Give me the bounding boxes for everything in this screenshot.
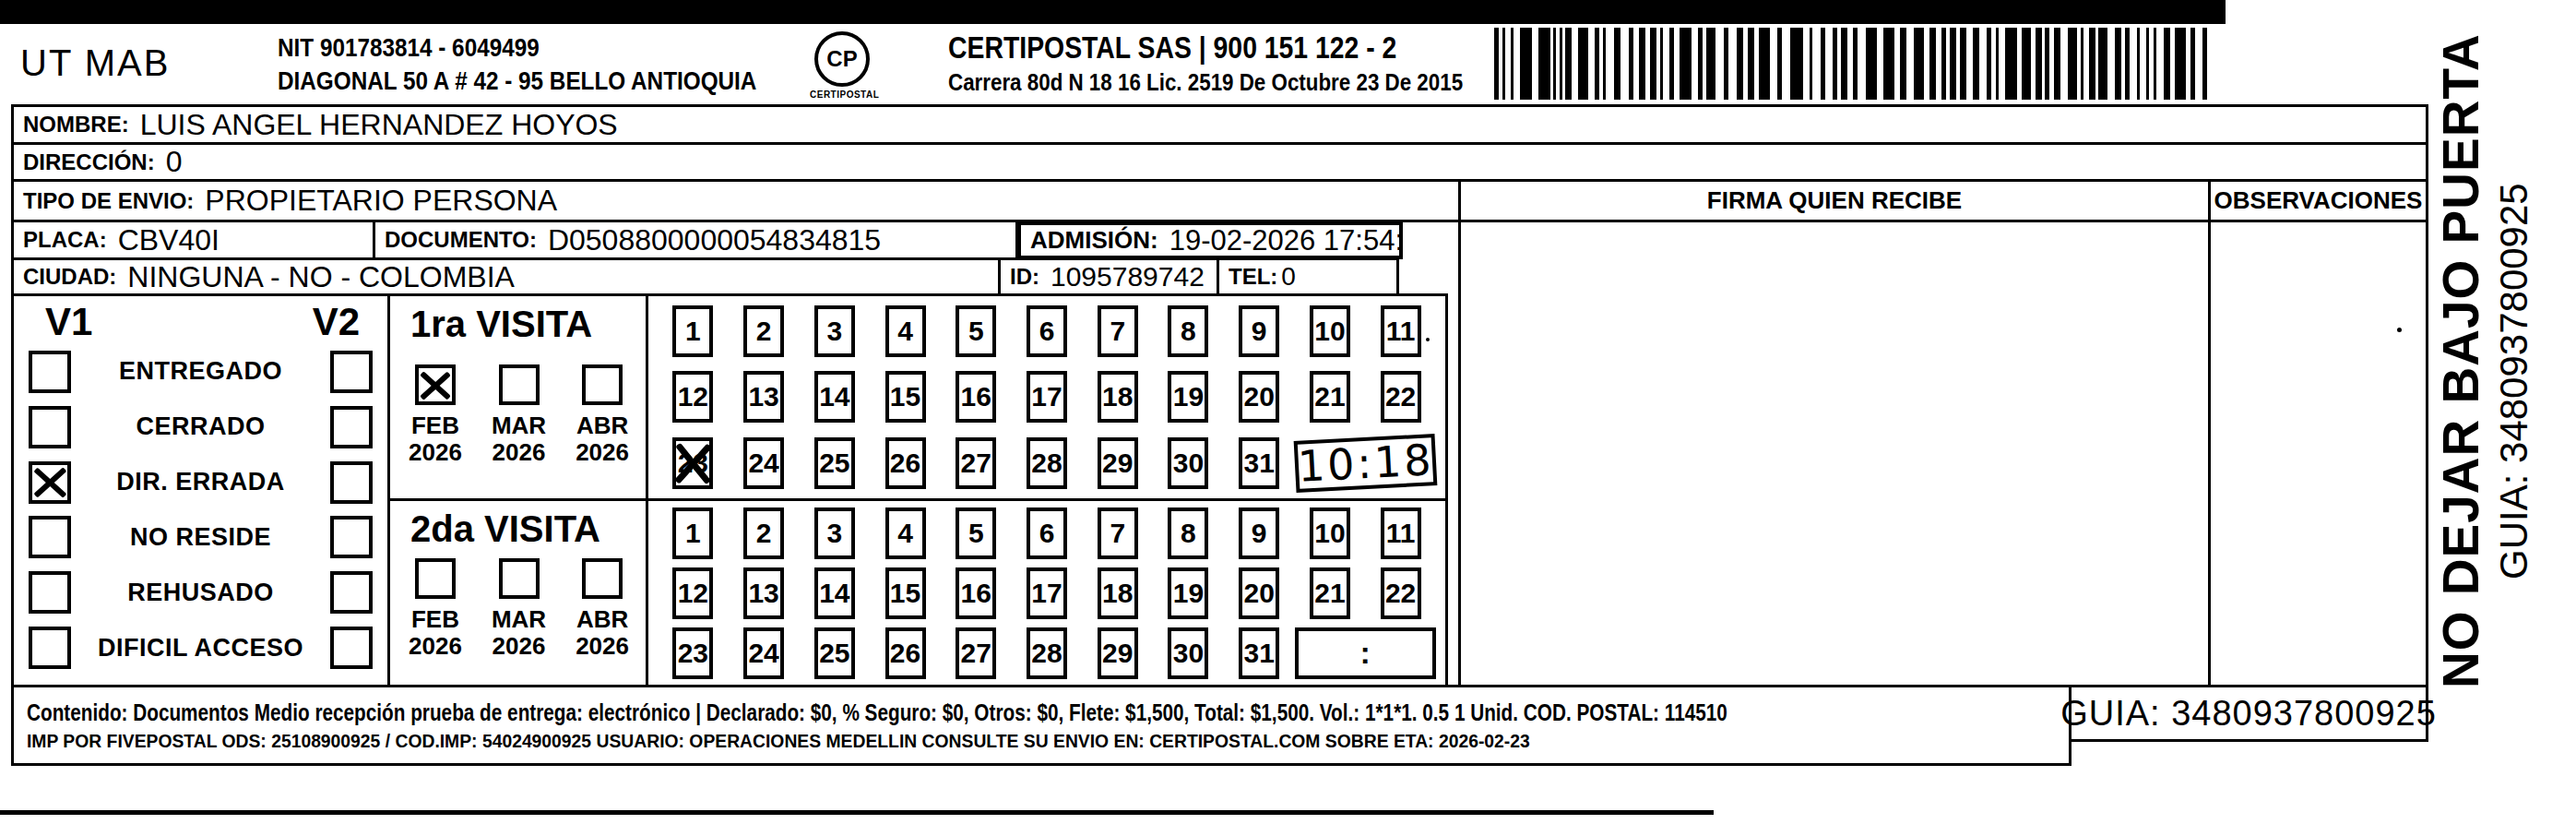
day-number: 6 [1039, 316, 1055, 347]
barcode-bar [1650, 28, 1656, 100]
day-number: 13 [748, 578, 778, 609]
shipment-details-box: Contenido: Documentos Medio recepción pr… [11, 685, 2071, 766]
day-number: 31 [1243, 448, 1274, 479]
day-number: 16 [961, 578, 991, 609]
day-number: 18 [1102, 578, 1133, 609]
status-label: DIR. ERRADA [71, 468, 330, 496]
day-row: 1213141516171819202122 [658, 371, 1436, 423]
placa-cell: PLACA: CBV40I [11, 220, 375, 260]
checkbox-v2-entregado [330, 351, 373, 393]
ciudad-value: NINGUNA - NO - COLOMBIA [127, 260, 515, 294]
day-box-9-visit2: 9 [1239, 508, 1279, 559]
day-number: 3 [826, 316, 842, 347]
day-box-7-visit1: 7 [1098, 305, 1138, 357]
day-number: 20 [1243, 578, 1274, 609]
day-number: 22 [1385, 578, 1416, 609]
barcode-bar [2022, 28, 2031, 100]
checkbox-month-mar-visit1 [499, 364, 540, 405]
barcode-bar [2068, 28, 2077, 100]
day-box-23-visit1: 23 [672, 437, 713, 489]
day-number: 17 [1031, 578, 1062, 609]
barcode-bar [2036, 28, 2042, 100]
day-number: 8 [1181, 316, 1196, 347]
barcode-bar [2202, 28, 2207, 100]
tel-cell: TEL: 0 [1217, 257, 1399, 296]
visit2-days: 1234567891011121314151617181920212223242… [658, 503, 1436, 683]
day-number: 11 [1386, 518, 1416, 549]
day-number: 9 [1252, 316, 1267, 347]
checkbox-v1-cerrado [29, 406, 71, 448]
visit1-months: FEB2026MAR2026ABR2026 [409, 364, 629, 466]
day-box-6-visit2: 6 [1027, 508, 1067, 559]
day-number: 14 [819, 381, 849, 412]
barcode-bar [1706, 28, 1715, 100]
day-number: 11 [1386, 316, 1416, 347]
day-box-26-visit2: 26 [885, 627, 926, 679]
day-number: 3 [826, 518, 842, 549]
barcode-bar [1996, 28, 1999, 100]
barcode-bar [1737, 28, 1743, 100]
visit2-months: FEB2026MAR2026ABR2026 [409, 558, 629, 660]
day-number: 26 [890, 448, 920, 479]
scan-artifact-dot [2397, 328, 2402, 332]
checkbox-v2-no-reside [330, 516, 373, 558]
barcode-bar [1578, 28, 1588, 100]
day-number: 24 [748, 638, 778, 669]
day-number: 2 [756, 518, 772, 549]
day-number: 4 [897, 518, 913, 549]
day-number: 12 [678, 381, 708, 412]
barcode-bar [1810, 28, 1812, 100]
tipo-envio-value: PROPIETARIO PERSONA [205, 184, 557, 218]
visit1-title: 1ra VISITA [410, 304, 592, 345]
day-box-10-visit1: 10 [1310, 305, 1350, 357]
checkbox-v1-dir-errada [29, 461, 71, 504]
barcode-bar [2115, 28, 2121, 100]
day-box-5-visit2: 5 [956, 508, 996, 559]
day-number: 26 [890, 638, 920, 669]
day-number: 29 [1102, 448, 1133, 479]
month-abr-visit2: ABR2026 [576, 558, 629, 660]
day-number: 24 [748, 448, 778, 479]
day-box-2-visit2: 2 [743, 508, 784, 559]
barcode-bar [1950, 28, 1956, 100]
barcode-bar [1866, 28, 1877, 100]
day-box-31-visit1: 31 [1239, 437, 1279, 489]
month-year: 2026 [576, 633, 629, 660]
sender-address-block: NIT 901783814 - 6049499 DIAGONAL 50 A # … [278, 31, 756, 98]
day-number: 22 [1385, 381, 1416, 412]
barcode-bar [1603, 28, 1606, 100]
status-label: REHUSADO [71, 579, 330, 607]
day-number: 25 [819, 638, 849, 669]
day-box-30-visit2: 30 [1168, 627, 1208, 679]
documento-cell: DOCUMENTO: D0508800000054834815 [373, 220, 1018, 260]
nombre-value: LUIS ANGEL HERNANDEZ HOYOS [140, 108, 618, 142]
day-number: 13 [748, 381, 778, 412]
day-box-19-visit2: 19 [1168, 567, 1208, 619]
side-strip: NO DEJAR BAJO PUERTA GUIA: 3480937800925 [2431, 89, 2576, 688]
day-number: 19 [1173, 578, 1204, 609]
nombre-row: NOMBRE: LUIS ANGEL HERNANDEZ HOYOS [11, 104, 2428, 145]
month-feb-visit1: FEB2026 [409, 364, 462, 466]
barcode-bar [1494, 28, 1499, 100]
barcode-bar [1853, 28, 1858, 100]
sender-nit: NIT 901783814 - 6049499 [278, 31, 756, 65]
admision-label: ADMISIÓN: [1030, 226, 1158, 255]
barcode-bar [1669, 28, 1674, 100]
day-box-15-visit1: 15 [885, 371, 926, 423]
barcode-bar [1553, 28, 1556, 100]
checkbox-v1-rehusado [29, 571, 71, 614]
day-box-12-visit2: 12 [672, 567, 713, 619]
month-name: MAR [492, 606, 546, 633]
id-value: 1095789742 [1051, 261, 1205, 293]
day-box-22-visit2: 22 [1381, 567, 1421, 619]
tel-label: TEL: [1229, 264, 1277, 290]
status-row-dir-errada: DIR. ERRADA [29, 461, 373, 504]
no-dejar-bajo-puerta-warning: NO DEJAR BAJO PUERTA [2431, 89, 2490, 688]
day-number: 10 [1314, 316, 1345, 347]
barcode-bar [2054, 28, 2060, 100]
day-box-13-visit2: 13 [743, 567, 784, 619]
barcode-bar [1883, 28, 1894, 100]
month-abr-visit1: ABR2026 [576, 364, 629, 466]
sender-street: DIAGONAL 50 A # 42 - 95 BELLO ANTIOQUIA [278, 65, 756, 98]
id-cell: ID: 1095789742 [998, 257, 1219, 296]
month-mar-visit2: MAR2026 [492, 558, 546, 660]
day-box-13-visit1: 13 [743, 371, 784, 423]
barcode-bar [1511, 28, 1514, 100]
day-box-8-visit1: 8 [1168, 305, 1208, 357]
barcode-bar [1929, 28, 1936, 100]
documento-value: D0508800000054834815 [548, 223, 881, 257]
month-name: FEB [411, 412, 459, 439]
company-block: CERTIPOSTAL SAS | 900 151 122 - 2 Carrer… [948, 30, 1463, 98]
month-year: 2026 [493, 633, 546, 660]
barcode-bar [1538, 28, 1550, 100]
month-year: 2026 [409, 633, 462, 660]
day-box-15-visit2: 15 [885, 567, 926, 619]
ciudad-cell: CIUDAD: NINGUNA - NO - COLOMBIA [11, 257, 1001, 296]
month-feb-visit2: FEB2026 [409, 558, 462, 660]
scan-artifact-dot [1426, 338, 1430, 341]
barcode-bar [1502, 28, 1505, 100]
documento-label: DOCUMENTO: [385, 227, 537, 253]
day-box-18-visit2: 18 [1098, 567, 1138, 619]
day-box-26-visit1: 26 [885, 437, 926, 489]
barcode-bar [2146, 28, 2149, 100]
month-name: FEB [411, 606, 459, 633]
checkbox-v2-cerrado [330, 406, 373, 448]
firma-header: FIRMA QUIEN RECIBE [1458, 179, 2211, 222]
day-box-24-visit1: 24 [743, 437, 784, 489]
barcode-bar [1900, 28, 1906, 100]
status-label: NO RESIDE [71, 523, 330, 552]
day-number: 5 [968, 316, 984, 347]
observaciones-area [2208, 220, 2428, 687]
day-box-21-visit1: 21 [1310, 371, 1350, 423]
day-box-29-visit2: 29 [1098, 627, 1138, 679]
day-box-2-visit1: 2 [743, 305, 784, 357]
day-box-4-visit2: 4 [885, 508, 926, 559]
checkbox-v2-dir-errada [330, 461, 373, 504]
time-box-visit1: 10:18 [1293, 434, 1437, 493]
status-row-dificil-acceso: DIFICIL ACCESO [29, 627, 373, 669]
month-name: ABR [576, 412, 628, 439]
checkbox-v1-entregado [29, 351, 71, 393]
barcode-bar [1841, 28, 1847, 100]
day-box-16-visit1: 16 [956, 371, 996, 423]
barcode-bar [1698, 28, 1703, 100]
visit1-column-header: V1 [45, 300, 92, 344]
barcode-bar [1680, 28, 1692, 100]
checkbox-month-feb-visit2 [415, 558, 456, 599]
barcode-bar [1759, 28, 1770, 100]
barcode-bar [2164, 28, 2170, 100]
placa-value: CBV40I [118, 223, 220, 257]
day-number: 7 [1110, 518, 1125, 549]
barcode-bar [1639, 28, 1645, 100]
month-year: 2026 [409, 439, 462, 466]
day-box-9-visit1: 9 [1239, 305, 1279, 357]
status-panel: V1 V2 ENTREGADOCERRADODIR. ERRADANO RESI… [11, 293, 390, 687]
visit2-title: 2da VISITA [410, 508, 600, 550]
barcode-bar [1614, 28, 1620, 100]
barcode-bar [1660, 28, 1663, 100]
day-number: 4 [897, 316, 913, 347]
day-box-6-visit1: 6 [1027, 305, 1067, 357]
day-box-11-visit1: 11 [1381, 305, 1421, 357]
day-number: 31 [1243, 638, 1274, 669]
sender-code: UT MAB [20, 42, 170, 84]
day-number: 2 [756, 316, 772, 347]
day-number: 12 [678, 578, 708, 609]
month-mar-visit1: MAR2026 [492, 364, 546, 466]
day-number: 8 [1181, 518, 1196, 549]
day-row: 23242526272829303110:18 [658, 437, 1436, 489]
direccion-label: DIRECCIÓN: [23, 149, 155, 175]
checkbox-month-mar-visit2 [499, 558, 540, 599]
day-number: 9 [1252, 518, 1267, 549]
status-label: DIFICIL ACCESO [71, 634, 330, 663]
day-box-21-visit2: 21 [1310, 567, 1350, 619]
day-box-27-visit2: 27 [956, 627, 996, 679]
company-license: Carrera 80d N 18 16 Lic. 2519 De Octubre… [948, 66, 1463, 98]
month-year: 2026 [493, 439, 546, 466]
day-number: 20 [1243, 381, 1274, 412]
barcode-bar [1724, 28, 1728, 100]
day-box-30-visit1: 30 [1168, 437, 1208, 489]
barcode-bar [1833, 28, 1837, 100]
checkbox-v1-no-reside [29, 516, 71, 558]
status-label: CERRADO [71, 412, 330, 441]
barcode [1494, 28, 2221, 100]
visit1-day-grid: 1234567891011121314151617181920212223242… [646, 293, 1448, 501]
signature-area [1458, 220, 2211, 687]
day-box-3-visit1: 3 [814, 305, 855, 357]
barcode-bar [1790, 28, 1803, 100]
day-box-3-visit2: 3 [814, 508, 855, 559]
checkbox-v1-dificil-acceso [29, 627, 71, 669]
day-box-25-visit2: 25 [814, 627, 855, 679]
barcode-bar [1987, 28, 1991, 100]
admision-value: 19-02-2026 17:54:45 [1169, 224, 1403, 257]
day-box-5-visit1: 5 [956, 305, 996, 357]
day-number: 21 [1314, 381, 1345, 412]
day-number: 6 [1039, 518, 1055, 549]
barcode-bar [1973, 28, 1979, 100]
certipostal-logo: CP CERTIPOSTAL [810, 31, 874, 100]
day-box-27-visit1: 27 [956, 437, 996, 489]
day-box-20-visit2: 20 [1239, 567, 1279, 619]
day-number: 18 [1102, 381, 1133, 412]
day-box-10-visit2: 10 [1310, 508, 1350, 559]
day-box-14-visit1: 14 [814, 371, 855, 423]
barcode-bar [1560, 28, 1562, 100]
barcode-bar [1520, 28, 1532, 100]
day-box-16-visit2: 16 [956, 567, 996, 619]
company-name: CERTIPOSTAL SAS | 900 151 122 - 2 [948, 30, 1463, 66]
barcode-bar [1748, 28, 1754, 100]
checkbox-month-abr-visit2 [582, 558, 623, 599]
side-strip-rotated: NO DEJAR BAJO PUERTA GUIA: 3480937800925 [2431, 89, 2576, 688]
barcode-bar [2125, 28, 2130, 100]
barcode-bar [1941, 28, 1946, 100]
day-number: 1 [685, 518, 701, 549]
visit1-days: 1234567891011121314151617181920212223242… [658, 298, 1436, 496]
day-number: 15 [890, 578, 920, 609]
day-box-17-visit2: 17 [1027, 567, 1067, 619]
ciudad-label: CIUDAD: [23, 264, 116, 290]
day-box-25-visit1: 25 [814, 437, 855, 489]
month-name: MAR [492, 412, 546, 439]
barcode-bar [2081, 28, 2083, 100]
day-number: 29 [1102, 638, 1133, 669]
day-number: 25 [819, 448, 849, 479]
day-box-23-visit2: 23 [672, 627, 713, 679]
barcode-bar [2045, 28, 2049, 100]
shipping-label-scan: UT MAB NIT 901783814 - 6049499 DIAGONAL … [0, 0, 2576, 836]
day-box-11-visit2: 11 [1381, 508, 1421, 559]
day-number: 1 [685, 316, 701, 347]
visit2-panel: 2da VISITA FEB2026MAR2026ABR2026 [387, 498, 648, 687]
barcode-bar [1821, 28, 1825, 100]
day-box-19-visit1: 19 [1168, 371, 1208, 423]
guia-number-box: GUIA: 3480937800925 [2069, 685, 2428, 742]
month-name: ABR [576, 606, 628, 633]
bottom-rule [0, 810, 1714, 815]
certipostal-logo-text: CERTIPOSTAL [810, 90, 874, 100]
day-box-31-visit2: 31 [1239, 627, 1279, 679]
day-number: 21 [1314, 578, 1345, 609]
visit2-day-grid: 1234567891011121314151617181920212223242… [646, 498, 1448, 687]
status-rows: ENTREGADOCERRADODIR. ERRADANO RESIDEREHU… [29, 344, 373, 675]
day-number: 19 [1173, 381, 1204, 412]
checkbox-month-abr-visit1 [582, 364, 623, 405]
status-row-cerrado: CERRADO [29, 406, 373, 448]
day-box-20-visit1: 20 [1239, 371, 1279, 423]
day-box-17-visit1: 17 [1027, 371, 1067, 423]
status-label: ENTREGADO [71, 357, 330, 386]
barcode-bar [2005, 28, 2017, 100]
placa-label: PLACA: [23, 227, 107, 253]
day-number: 10 [1314, 518, 1345, 549]
barcode-bar [1777, 28, 1782, 100]
barcode-bar [2137, 28, 2140, 100]
id-label: ID: [1010, 264, 1039, 290]
day-number: 15 [890, 381, 920, 412]
day-number: 27 [961, 448, 991, 479]
top-black-bar [0, 0, 2226, 24]
day-box-24-visit2: 24 [743, 627, 784, 679]
visit1-panel: 1ra VISITA FEB2026MAR2026ABR2026 [387, 293, 648, 501]
observaciones-header: OBSERVACIONES [2208, 179, 2428, 222]
admision-cell: ADMISIÓN: 19-02-2026 17:54:45 [1017, 221, 1403, 259]
day-number: 27 [961, 638, 991, 669]
barcode-bar [1629, 28, 1633, 100]
barcode-bar [2154, 28, 2156, 100]
day-number: 5 [968, 518, 984, 549]
day-number: 30 [1173, 638, 1204, 669]
day-row: 1234567891011 [658, 305, 1436, 357]
day-row: 1234567891011 [658, 508, 1436, 559]
tel-value: 0 [1281, 262, 1296, 292]
day-box-29-visit1: 29 [1098, 437, 1138, 489]
status-row-entregado: ENTREGADO [29, 351, 373, 393]
status-row-no-reside: NO RESIDE [29, 516, 373, 558]
day-number: 7 [1110, 316, 1125, 347]
time-box-visit2: : [1295, 627, 1436, 679]
day-box-7-visit2: 7 [1098, 508, 1138, 559]
day-box-1-visit2: 1 [672, 508, 713, 559]
day-box-28-visit2: 28 [1027, 627, 1067, 679]
checkbox-month-feb-visit1 [415, 364, 456, 405]
barcode-bar [2098, 28, 2107, 100]
shipment-details-line1: Contenido: Documentos Medio recepción pr… [27, 699, 1711, 726]
barcode-bar [1595, 28, 1599, 100]
day-box-18-visit1: 18 [1098, 371, 1138, 423]
day-number: 23 [678, 638, 708, 669]
certipostal-logo-icon: CP [814, 31, 870, 87]
direccion-row: DIRECCIÓN: 0 [11, 142, 2428, 182]
day-row: 232425262728293031: [658, 627, 1436, 679]
status-row-rehusado: REHUSADO [29, 571, 373, 614]
tipo-envio-row: TIPO DE ENVIO: PROPIETARIO PERSONA [11, 179, 1461, 222]
day-box-12-visit1: 12 [672, 371, 713, 423]
day-number: 28 [1031, 448, 1062, 479]
barcode-bar [1960, 28, 1966, 100]
direccion-value: 0 [166, 145, 183, 179]
barcode-bar [2089, 28, 2095, 100]
barcode-bar [1914, 28, 1924, 100]
barcode-bar [2190, 28, 2195, 100]
day-number: 30 [1173, 448, 1204, 479]
day-number: 16 [961, 381, 991, 412]
day-row: 1213141516171819202122 [658, 567, 1436, 619]
day-box-1-visit1: 1 [672, 305, 713, 357]
day-number: 17 [1031, 381, 1062, 412]
checkbox-v2-rehusado [330, 571, 373, 614]
barcode-bar [2175, 28, 2186, 100]
month-year: 2026 [576, 439, 629, 466]
day-box-14-visit2: 14 [814, 567, 855, 619]
day-box-22-visit1: 22 [1381, 371, 1421, 423]
side-strip-guia: GUIA: 3480937800925 [2492, 89, 2536, 579]
visit2-column-header: V2 [313, 300, 360, 344]
barcode-bar [1565, 28, 1572, 100]
day-number: 14 [819, 578, 849, 609]
